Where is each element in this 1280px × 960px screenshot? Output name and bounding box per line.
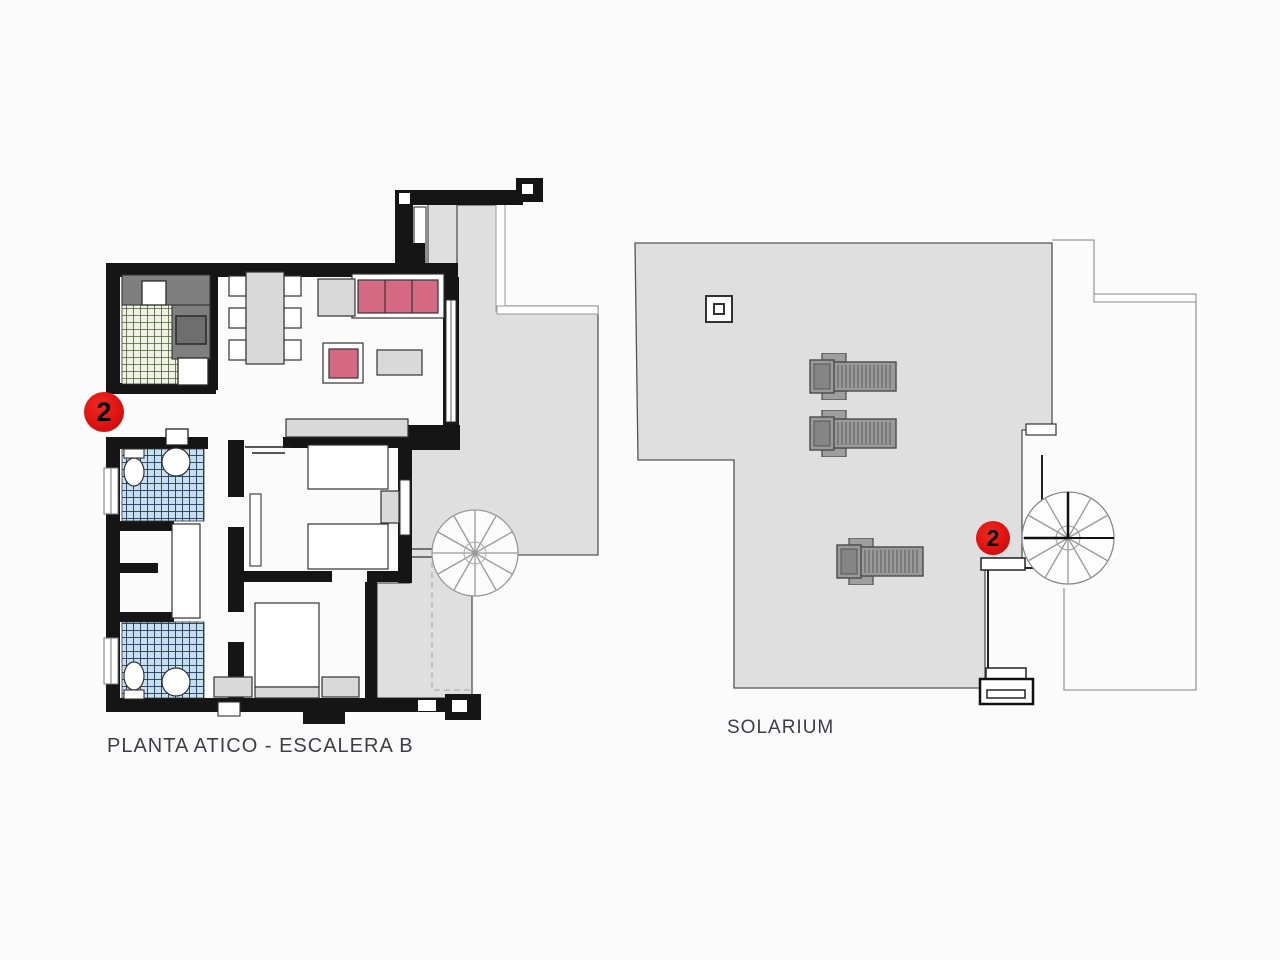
washbasin	[162, 668, 190, 696]
side-table	[318, 279, 355, 316]
toilet	[124, 662, 144, 690]
armchair	[329, 349, 358, 378]
solarium-plan	[635, 240, 1196, 704]
bathroom-2	[122, 622, 204, 699]
dining-table	[246, 272, 284, 364]
penthouse-plan-label: PLANTA ATICO - ESCALERA B	[107, 735, 414, 758]
nightstand-left	[214, 677, 252, 697]
unit-badge-solarium: 2	[976, 521, 1010, 555]
living-furniture	[318, 274, 444, 383]
dining-set	[229, 272, 301, 364]
floor-plan-drawing	[0, 0, 1280, 960]
bed-double	[255, 603, 319, 687]
bed-single-2	[308, 524, 388, 569]
sofa	[358, 280, 438, 313]
solarium-floor	[635, 243, 1052, 688]
washbasin	[162, 448, 190, 476]
toilet	[124, 458, 144, 486]
bedroom1-door	[250, 494, 261, 566]
bedroom1-window	[400, 480, 410, 535]
penthouse-plan	[104, 178, 598, 724]
coffee-table	[377, 350, 422, 375]
kitchen	[122, 275, 210, 385]
skylight	[706, 296, 732, 322]
cooktop	[176, 316, 206, 344]
solarium-plan-label: SOLARIUM	[727, 717, 834, 739]
kitchen-sink	[142, 281, 166, 305]
bathroom-vent	[166, 429, 188, 445]
solarium-spiral-staircase	[1022, 492, 1114, 584]
hall-closet	[172, 524, 200, 618]
floor-plan-page: 2 2 PLANTA ATICO - ESCALERA B SOLARIUM	[0, 0, 1280, 960]
solarium-outer-boundary	[1052, 240, 1196, 690]
wardrobe	[286, 419, 408, 437]
bed-single-1	[308, 445, 388, 489]
bathroom-1	[122, 448, 204, 521]
kitchen-appliance	[178, 358, 208, 385]
nightstand	[381, 491, 399, 523]
nightstand-right	[322, 677, 359, 697]
unit-badge-penthouse: 2	[84, 392, 124, 432]
